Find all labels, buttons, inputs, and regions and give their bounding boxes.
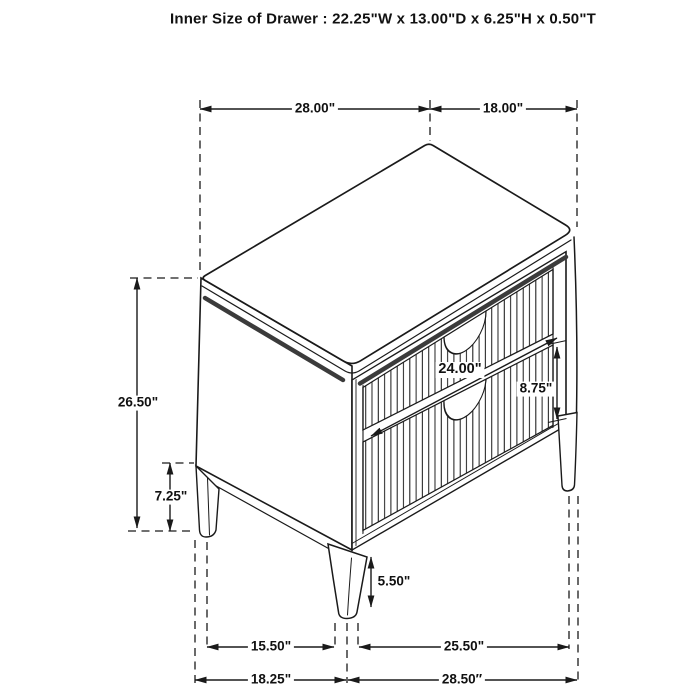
dim-label-overall-height: 26.50" (115, 396, 161, 411)
dim-label-base-depth: 18.25" (248, 673, 294, 688)
dim-label-leg-span-front: 25.50" (441, 640, 487, 655)
diagram-title: Inner Size of Drawer : 22.25"W x 13.00"D… (170, 11, 596, 28)
dim-label-top-width: 28.00" (292, 102, 338, 117)
dim-label-drawer-front-height: 8.75" (517, 382, 556, 397)
dim-label-leg-span-side: 15.50" (248, 640, 294, 655)
leg-right-rear (558, 413, 577, 492)
dim-label-drawer-front-width: 24.00" (435, 362, 484, 378)
dim-label-base-width: 28.50″ (439, 673, 485, 688)
dimension-diagram: Inner Size of Drawer : 22.25"W x 13.00"D… (0, 0, 700, 700)
nightstand-line-drawing (0, 0, 700, 700)
leg-front (328, 544, 367, 619)
dim-label-leg-height: 5.50" (375, 575, 414, 590)
dim-label-underside-clearance: 7.25" (152, 490, 191, 505)
dim-label-top-depth: 18.00" (480, 102, 526, 117)
